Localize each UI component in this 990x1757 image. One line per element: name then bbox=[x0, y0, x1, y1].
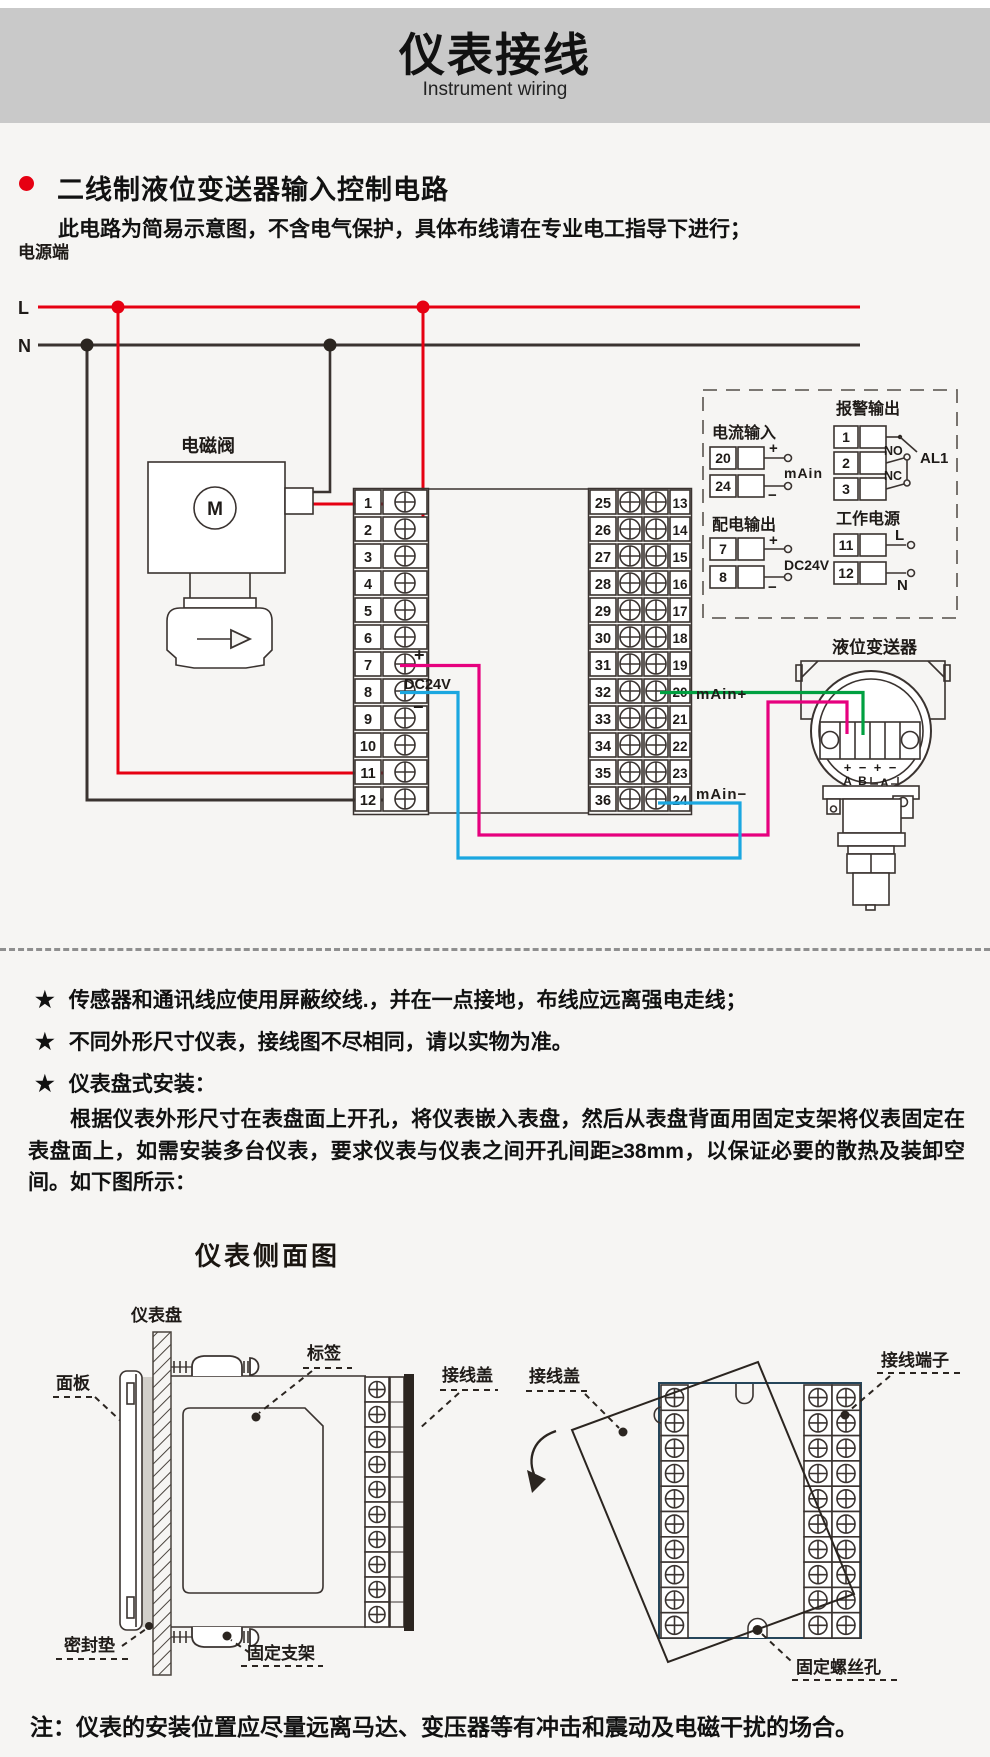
terminal-number: 5 bbox=[364, 604, 372, 620]
screw-terminal-icon bbox=[809, 1616, 827, 1634]
screw-terminal-icon bbox=[369, 1407, 385, 1423]
terminal-number: 25 bbox=[595, 496, 611, 512]
screw-terminal-icon bbox=[646, 546, 666, 566]
terminal-number: 24 bbox=[672, 793, 688, 808]
screw-terminal-icon bbox=[809, 1566, 827, 1584]
screw-terminal-icon bbox=[395, 573, 415, 593]
l-label: L bbox=[895, 527, 904, 544]
n-label: N bbox=[897, 577, 908, 594]
screw-terminal-icon bbox=[646, 654, 666, 674]
screw-terminal-icon bbox=[646, 627, 666, 647]
note-item-1: ★传感器和通讯线应使用屏蔽绞线.，并在一点接地，布线应远离强电走线； bbox=[35, 984, 747, 1014]
screw-terminal-icon bbox=[620, 708, 640, 728]
rear-terminal-columns bbox=[661, 1385, 860, 1638]
screw-terminal-icon bbox=[369, 1607, 385, 1623]
screw-terminal-icon bbox=[620, 573, 640, 593]
pin-sign: − bbox=[859, 760, 867, 775]
front-panel bbox=[120, 1371, 142, 1630]
junction-dot bbox=[417, 301, 430, 314]
terminal-number: 1 bbox=[364, 496, 372, 512]
work-power-title: 工作电源 bbox=[836, 509, 900, 528]
l-line-label: L bbox=[18, 298, 29, 318]
minus-sign: − bbox=[768, 487, 777, 504]
terminal-number: 19 bbox=[672, 658, 687, 673]
transmitter-group: 液位变送器 + − + − A B A bbox=[796, 637, 950, 910]
rear-view-diagram: 接线盖 接线端子 固定螺丝孔 bbox=[526, 1350, 963, 1680]
solenoid-connector bbox=[285, 488, 313, 514]
terminal-number: 12 bbox=[838, 565, 854, 581]
terminal-number: 2 bbox=[842, 455, 850, 471]
main-plus-label: mAin+ bbox=[696, 686, 747, 703]
screw-terminal-icon bbox=[369, 1582, 385, 1598]
side-view-title: 仪表侧面图 bbox=[120, 1236, 415, 1273]
dashed-option-panel: 电流输入 20 + 24 − mAin 报警输出 1 2 3 bbox=[703, 390, 957, 618]
solenoid-label: 电磁阀 bbox=[181, 435, 235, 456]
screw-terminal-icon bbox=[620, 762, 640, 782]
pin-sign: − bbox=[889, 760, 897, 775]
screw-terminal-icon bbox=[646, 708, 666, 728]
dc24v-label: DC24V bbox=[404, 677, 451, 693]
work-power-group: 工作电源 11 L 12 N bbox=[834, 509, 915, 594]
plus-sign: + bbox=[769, 532, 778, 549]
transmitter-process-connection bbox=[853, 873, 889, 905]
footer-note: 注：仪表的安装位置应尽量远离马达、变压器等有冲击和震动及电磁干扰的场合。 bbox=[30, 1708, 858, 1742]
dist-output-title: 配电输出 bbox=[712, 515, 776, 534]
dc24v-plus: + bbox=[414, 645, 425, 665]
terminal-number: 35 bbox=[595, 766, 611, 782]
screw-terminal-icon bbox=[395, 546, 415, 566]
nc-label: NC bbox=[884, 469, 902, 483]
terminal-number: 3 bbox=[842, 481, 850, 497]
terminal-number: 28 bbox=[595, 577, 611, 593]
wiring-diagram-svg: 电源端 L N 电磁阀 M 123456789101112 2513261427… bbox=[0, 0, 990, 1757]
junction-dot bbox=[324, 339, 337, 352]
gasket-strip bbox=[142, 1377, 153, 1627]
terminal-number: 26 bbox=[595, 523, 611, 539]
screw-terminal-icon bbox=[620, 681, 640, 701]
screw-terminal-icon bbox=[620, 735, 640, 755]
terminal-number: 32 bbox=[595, 685, 611, 701]
screw-terminal-icon bbox=[646, 600, 666, 620]
terminal-number: 1 bbox=[842, 429, 850, 445]
junction-dot bbox=[81, 339, 94, 352]
screw-terminal-icon bbox=[837, 1490, 855, 1508]
rotate-arrow-head bbox=[527, 1470, 546, 1493]
screw-terminal-icon bbox=[646, 492, 666, 512]
terminal-number: 17 bbox=[672, 604, 687, 619]
screw-terminal-icon bbox=[837, 1515, 855, 1533]
valve-body bbox=[167, 608, 272, 668]
terminal-number: 7 bbox=[364, 658, 372, 674]
screw-terminal-icon bbox=[369, 1382, 385, 1398]
screw-terminal-icon bbox=[369, 1507, 385, 1523]
terminal-number: 30 bbox=[595, 631, 611, 647]
screw-terminal-icon bbox=[809, 1414, 827, 1432]
junction-dot bbox=[112, 301, 125, 314]
dc24v-label: DC24V bbox=[784, 557, 830, 573]
screw-terminal-icon bbox=[646, 573, 666, 593]
screw-terminal-icon bbox=[646, 519, 666, 539]
cover-left-label: 接线盖 bbox=[442, 1365, 493, 1385]
terminal-number: 24 bbox=[715, 478, 731, 494]
cover-right-label: 接线盖 bbox=[529, 1366, 580, 1386]
al1-label: AL1 bbox=[920, 450, 948, 467]
label-area bbox=[183, 1408, 323, 1593]
terminal-number: 21 bbox=[672, 712, 688, 727]
screw-terminal-icon bbox=[395, 600, 415, 620]
screw-terminal-icon bbox=[395, 735, 415, 755]
terminal-number: 18 bbox=[672, 631, 688, 646]
screw-terminal-icon bbox=[809, 1465, 827, 1483]
screw-terminal-icon bbox=[395, 492, 415, 512]
screw-terminal-icon bbox=[837, 1439, 855, 1457]
main-minus-label: mAin− bbox=[696, 786, 747, 803]
screw-terminal-icon bbox=[666, 1414, 684, 1432]
terminal-number: 2 bbox=[364, 523, 372, 539]
screw-terminal-icon bbox=[395, 519, 415, 539]
star-icon: ★ bbox=[35, 1029, 55, 1054]
screw-terminal-icon bbox=[666, 1515, 684, 1533]
install-paragraph: 根据仪表外形尺寸在表盘面上开孔，将仪表嵌入表盘，然后从表盘背面用固定支架将仪表固… bbox=[28, 1104, 965, 1199]
section-bullet-icon bbox=[19, 176, 34, 191]
screw-terminal-icon bbox=[666, 1566, 684, 1584]
alarm-output-group: 报警输出 1 2 3 NO NC AL1 bbox=[834, 399, 948, 500]
terminal-number: 11 bbox=[360, 766, 375, 782]
main-label: mAin bbox=[784, 465, 823, 481]
current-input-title: 电流输入 bbox=[712, 423, 776, 442]
bracket-label: 固定支架 bbox=[247, 1643, 315, 1663]
screw-terminal-icon bbox=[666, 1439, 684, 1457]
note-item-text: 仪表盘式安装： bbox=[69, 1073, 216, 1096]
screw-terminal-icon bbox=[666, 1540, 684, 1558]
screw-terminal-icon bbox=[837, 1465, 855, 1483]
terminal-number: 9 bbox=[364, 712, 372, 728]
motor-letter: M bbox=[207, 499, 223, 520]
side-terminal-column bbox=[365, 1377, 404, 1627]
panel-board-label: 仪表盘 bbox=[130, 1305, 182, 1325]
note-item-text: 不同外形尺寸仪表，接线图不尽相同，请以实物为准。 bbox=[69, 1031, 573, 1054]
pin-sign: + bbox=[874, 760, 882, 775]
screw-hole-label: 固定螺丝孔 bbox=[796, 1657, 881, 1677]
current-input-group: 电流输入 20 + 24 − mAin bbox=[710, 423, 823, 504]
screw-terminal-icon bbox=[809, 1439, 827, 1457]
bracket-screw-bottom bbox=[171, 1627, 259, 1647]
terminal-number: 8 bbox=[364, 685, 372, 701]
terminal-number: 10 bbox=[360, 739, 376, 755]
terminal-number: 34 bbox=[595, 739, 611, 755]
star-icon: ★ bbox=[35, 1071, 55, 1096]
screw-terminal-icon bbox=[666, 1465, 684, 1483]
screw-terminal-icon bbox=[620, 627, 640, 647]
terminal-number: 12 bbox=[360, 793, 376, 809]
power-label: 电源端 bbox=[18, 242, 69, 262]
screw-terminal-icon bbox=[837, 1389, 855, 1407]
solenoid-valve: 电磁阀 M bbox=[148, 435, 313, 668]
terminal-number: 31 bbox=[595, 658, 611, 674]
panel-board-wall bbox=[153, 1332, 171, 1675]
star-icon: ★ bbox=[35, 987, 55, 1012]
terminal-number: 3 bbox=[364, 550, 372, 566]
terminal-number: 11 bbox=[839, 537, 854, 553]
terminal-number: 6 bbox=[364, 631, 372, 647]
no-label: NO bbox=[884, 444, 903, 458]
screw-terminal-icon bbox=[620, 519, 640, 539]
terminal-number: 22 bbox=[672, 739, 687, 754]
screw-terminal-icon bbox=[369, 1482, 385, 1498]
terminal-number: 14 bbox=[672, 523, 688, 538]
transmitter-title: 液位变送器 bbox=[832, 637, 918, 657]
tag-label: 标签 bbox=[307, 1343, 342, 1363]
terminal-number: 23 bbox=[672, 766, 688, 781]
screw-terminal-icon bbox=[369, 1557, 385, 1573]
terminal-number: 36 bbox=[595, 793, 611, 809]
valve-neck bbox=[184, 598, 256, 608]
screw-terminal-icon bbox=[620, 654, 640, 674]
terminal-number: 7 bbox=[719, 541, 727, 557]
pin-sign: + bbox=[844, 760, 852, 775]
section-title: 二线制液位变送器输入控制电路 bbox=[57, 168, 449, 207]
note-item-2: ★不同外形尺寸仪表，接线图不尽相同，请以实物为准。 bbox=[35, 1026, 573, 1056]
front-panel-label: 面板 bbox=[56, 1373, 91, 1393]
alarm-output-title: 报警输出 bbox=[836, 399, 900, 418]
screw-terminal-icon bbox=[837, 1540, 855, 1558]
terminal-cover-bar bbox=[404, 1374, 414, 1631]
screw-terminal-icon bbox=[395, 708, 415, 728]
screw-terminal-icon bbox=[369, 1532, 385, 1548]
screw-terminal-icon bbox=[666, 1389, 684, 1407]
terminal-number: 27 bbox=[595, 550, 611, 566]
screw-terminal-icon bbox=[395, 762, 415, 782]
screw-terminal-icon bbox=[620, 492, 640, 512]
screw-terminal-icon bbox=[646, 762, 666, 782]
terminal-number: 8 bbox=[719, 569, 727, 585]
terminal-block-mid: 2513261427152816291730183119322033213422… bbox=[589, 489, 692, 815]
terminal-number: 13 bbox=[672, 496, 688, 511]
section-note: 此电路为简易示意图，不含电气保护，具体布线请在专业电工指导下进行； bbox=[58, 213, 751, 243]
screw-terminal-icon bbox=[666, 1616, 684, 1634]
screw-terminal-icon bbox=[666, 1591, 684, 1609]
terminal-number: 29 bbox=[595, 604, 611, 620]
screw-terminal-icon bbox=[620, 600, 640, 620]
side-view-diagram: 仪表盘 面板 标签 bbox=[53, 1305, 498, 1675]
dist-output-group: 配电输出 7 + 8 − DC24V bbox=[710, 515, 830, 596]
screw-terminal-icon bbox=[620, 546, 640, 566]
terminal-number: 20 bbox=[715, 450, 731, 466]
terminal-block-label: 接线端子 bbox=[881, 1350, 949, 1370]
note-item-text: 传感器和通讯线应使用屏蔽绞线.，并在一点接地，布线应远离强电走线； bbox=[69, 989, 747, 1012]
screw-terminal-icon bbox=[646, 789, 666, 809]
plus-sign: + bbox=[769, 440, 778, 457]
bracket-screw-top bbox=[171, 1356, 259, 1376]
screw-terminal-icon bbox=[395, 789, 415, 809]
terminal-number: 15 bbox=[672, 550, 688, 565]
screw-terminal-icon bbox=[369, 1457, 385, 1473]
screw-terminal-icon bbox=[369, 1432, 385, 1448]
note-item-3: ★仪表盘式安装： bbox=[35, 1068, 216, 1098]
screw-terminal-icon bbox=[395, 627, 415, 647]
n-wire-to-solenoid bbox=[313, 345, 330, 492]
screw-terminal-icon bbox=[620, 789, 640, 809]
terminal-number: 33 bbox=[595, 712, 611, 728]
minus-sign: − bbox=[768, 579, 777, 596]
screw-terminal-icon bbox=[666, 1490, 684, 1508]
screw-terminal-icon bbox=[809, 1389, 827, 1407]
terminal-number: 16 bbox=[672, 577, 688, 592]
dc24v-minus: − bbox=[413, 697, 424, 717]
screw-terminal-icon bbox=[809, 1540, 827, 1558]
terminal-number: 4 bbox=[364, 577, 372, 593]
gasket-label: 密封垫 bbox=[64, 1635, 115, 1655]
screw-terminal-icon bbox=[646, 735, 666, 755]
n-line-label: N bbox=[18, 336, 31, 356]
screw-terminal-icon bbox=[837, 1616, 855, 1634]
